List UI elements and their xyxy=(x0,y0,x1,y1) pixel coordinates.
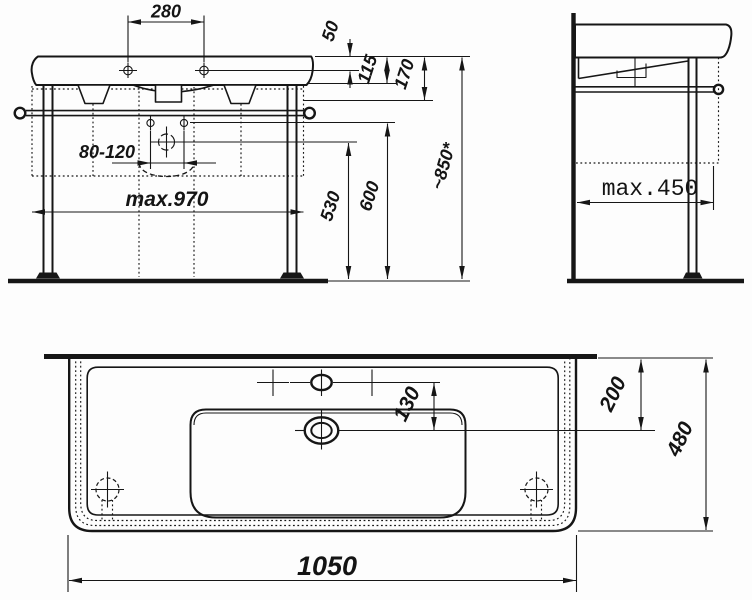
washbasin-dimension-drawing: 280 50 115 170 600 xyxy=(0,0,752,600)
dim-faucet-to-drain: 130 xyxy=(389,383,434,430)
dim-label-530: 530 xyxy=(316,189,344,224)
rail-knob-left xyxy=(15,108,26,119)
mounting-hole-left xyxy=(91,472,124,522)
mounting-hole-right xyxy=(520,472,553,522)
side-view: max.450 xyxy=(567,13,744,281)
dim-drain-height: 600 xyxy=(355,124,387,280)
rail-knob-right xyxy=(304,108,315,119)
left-foot xyxy=(36,273,60,279)
dim-frame-width: max.970 xyxy=(32,188,304,212)
dim-label-200: 200 xyxy=(595,373,632,416)
dim-label-480: 480 xyxy=(662,418,699,461)
tap-mark-right xyxy=(356,370,388,397)
plan-view: 130 200 480 1050 xyxy=(44,357,713,593)
dim-label-50: 50 xyxy=(318,19,343,44)
basin-underside xyxy=(78,85,256,104)
dim-label-80-120: 80-120 xyxy=(79,142,135,162)
siphon-cover xyxy=(156,85,182,102)
right-foot xyxy=(280,273,304,279)
dim-label-max450: max.450 xyxy=(602,176,699,202)
basin-underside-side xyxy=(579,58,689,87)
dim-label-130: 130 xyxy=(389,383,425,425)
drain-hole xyxy=(295,410,655,450)
dim-max-depth: max.450 xyxy=(577,166,714,210)
dim-label-1050: 1050 xyxy=(297,551,357,581)
dim-rim-to-tap: 50 xyxy=(318,19,350,88)
side-foot xyxy=(683,273,703,279)
front-view: 280 50 115 170 600 xyxy=(8,2,470,282)
dim-overall-height: ~850* xyxy=(427,58,462,280)
towel-rail-side xyxy=(575,85,723,94)
tap-mark-left xyxy=(257,370,289,397)
basin-side-outline xyxy=(575,25,731,58)
frame-leg-side xyxy=(683,58,703,279)
drain-target xyxy=(151,127,183,158)
right-bracket xyxy=(224,85,256,104)
dim-rail-height: 530 xyxy=(316,143,348,279)
dim-label-600: 600 xyxy=(355,179,383,214)
towel-rail xyxy=(15,108,315,119)
dim-depth: 480 xyxy=(578,358,713,531)
dim-width: 1050 xyxy=(68,535,577,592)
dim-label-850: ~850* xyxy=(427,140,460,192)
dim-label-max970: max.970 xyxy=(126,188,209,211)
dim-wall-to-drain: 200 xyxy=(595,360,641,431)
dim-tap-spacing: 280 xyxy=(128,2,204,63)
left-bracket xyxy=(78,85,110,104)
technical-drawing-page: 280 50 115 170 600 xyxy=(0,0,752,600)
dim-label-280: 280 xyxy=(150,2,181,22)
dim-supply-spacing: 80-120 xyxy=(79,131,216,169)
dim-label-170: 170 xyxy=(390,57,418,92)
dim-rim-to-rail: 170 xyxy=(390,57,424,100)
supply-connections xyxy=(147,116,188,131)
